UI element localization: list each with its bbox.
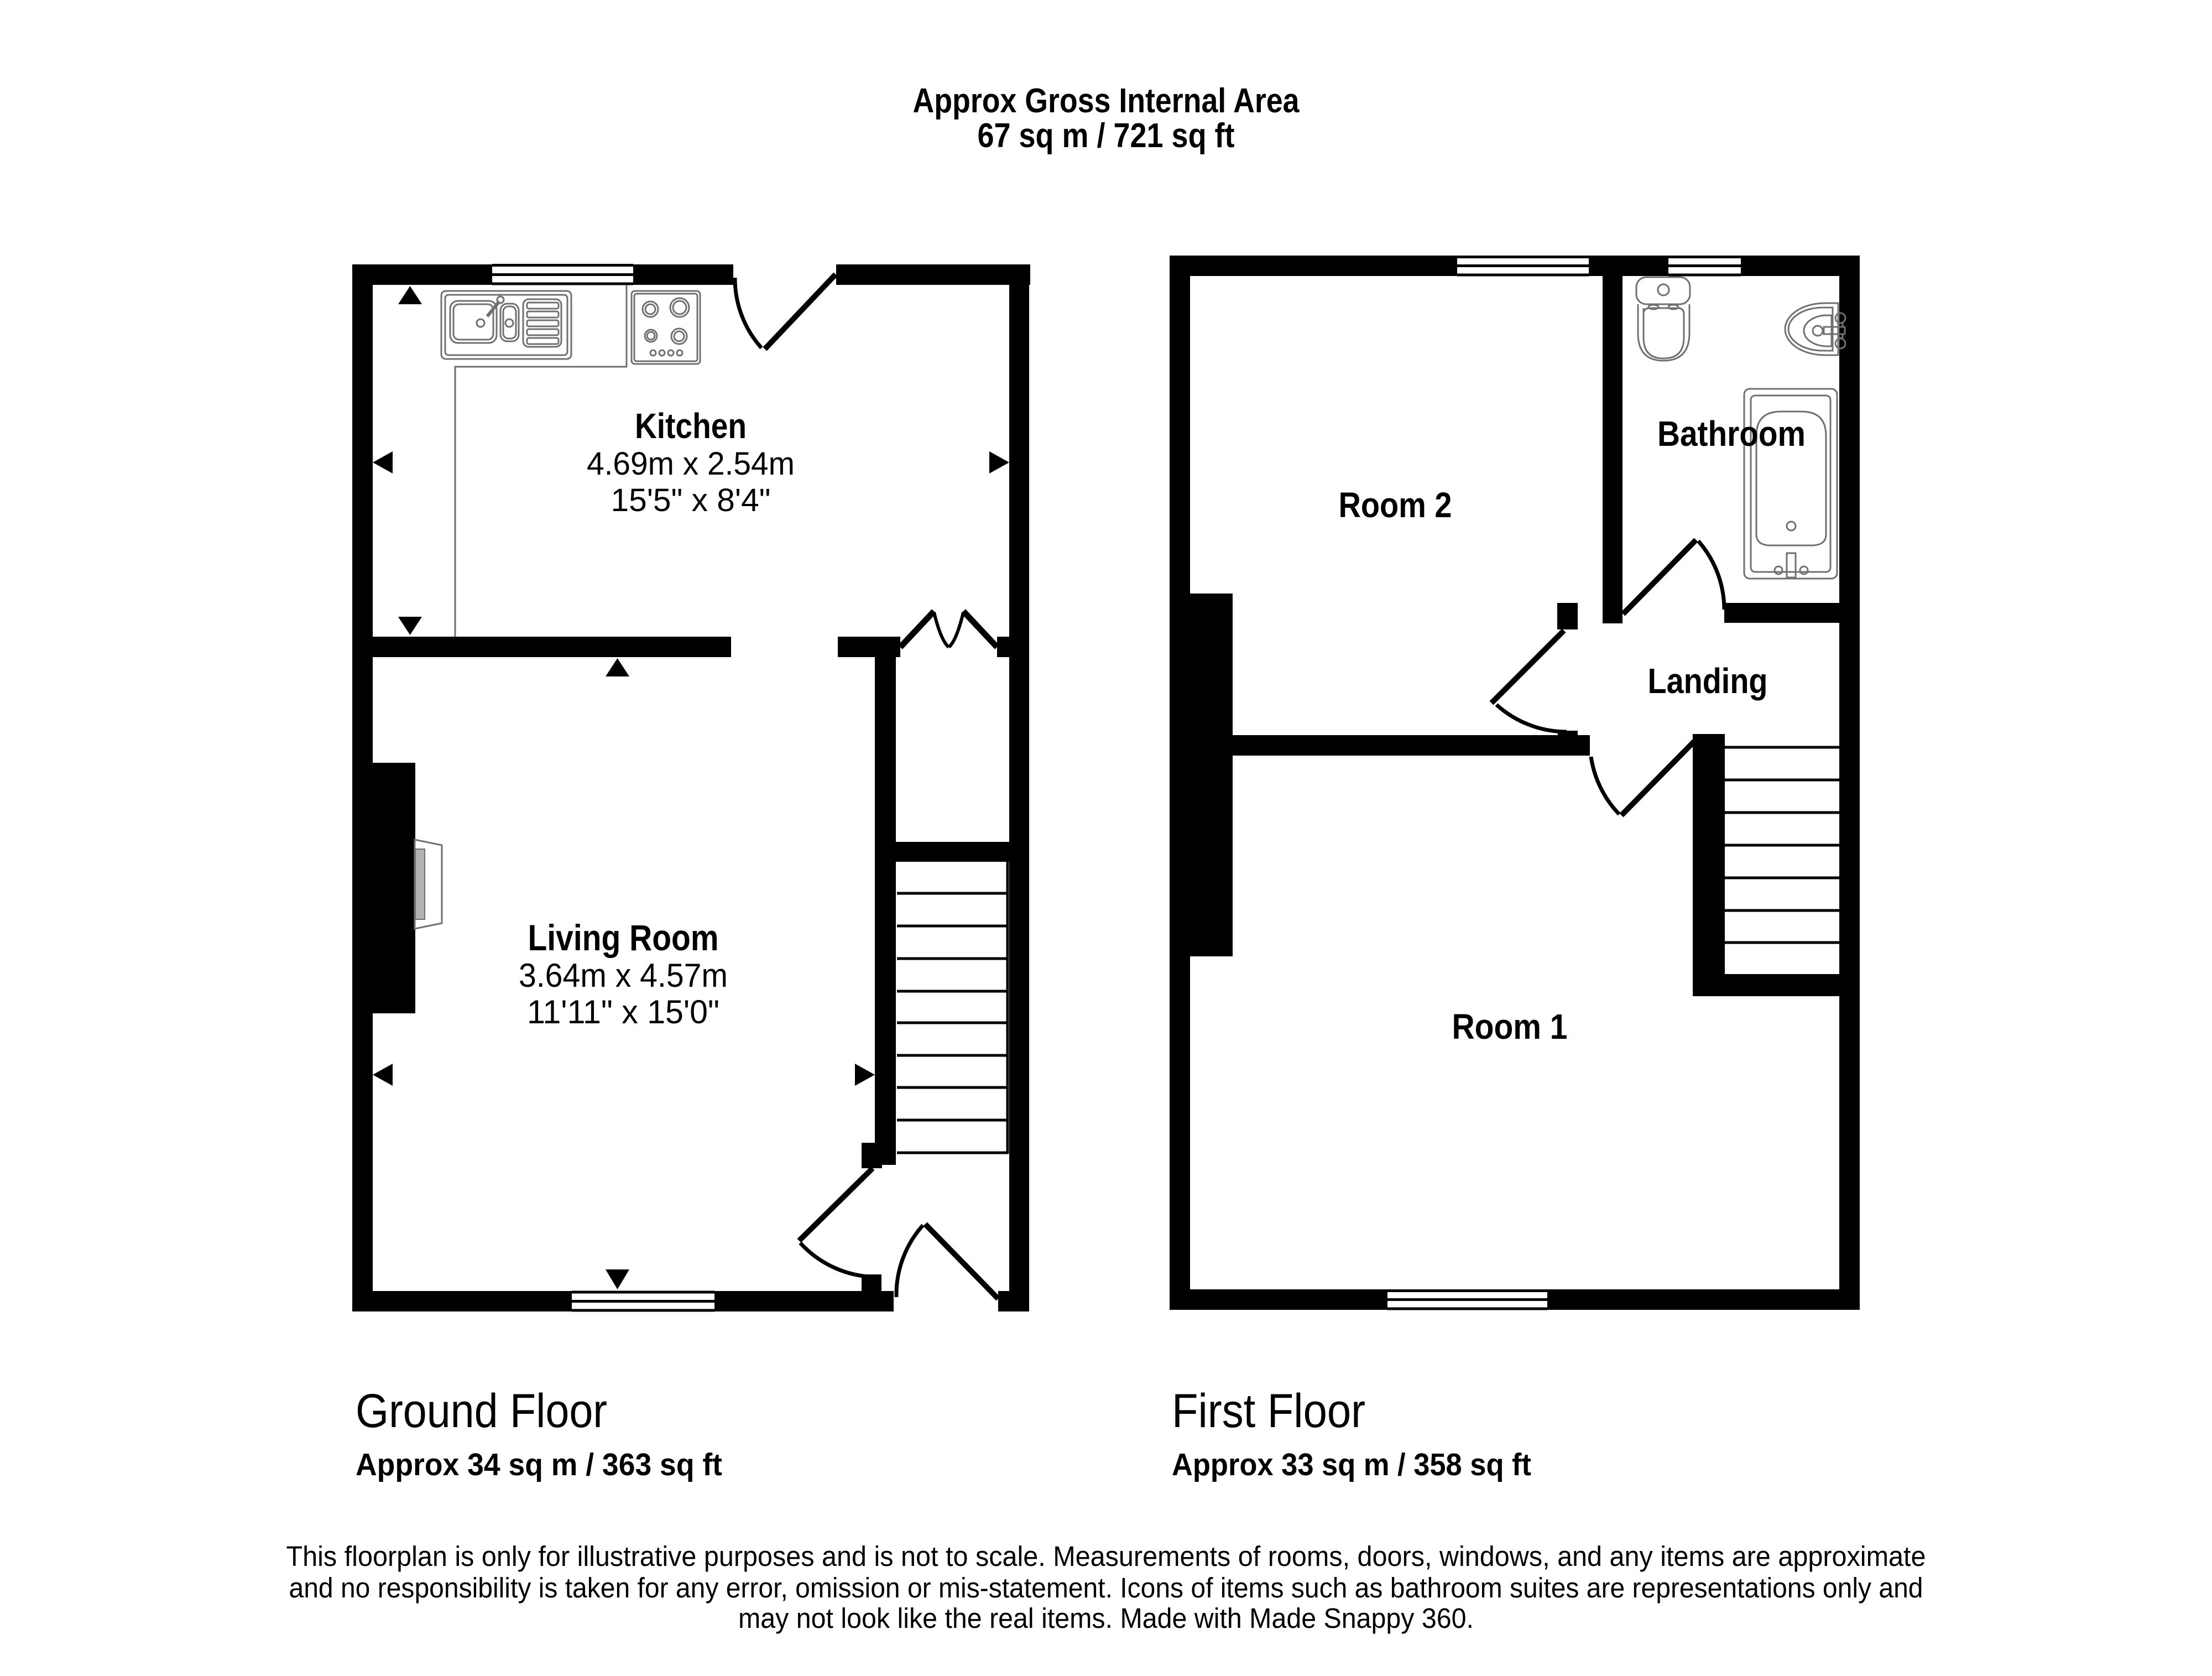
svg-text:67 sq m / 721 sq ft: 67 sq m / 721 sq ft bbox=[978, 117, 1235, 155]
svg-text:Landing: Landing bbox=[1648, 661, 1768, 701]
svg-text:Living Room: Living Room bbox=[528, 917, 719, 958]
svg-text:Ground Floor: Ground Floor bbox=[356, 1384, 607, 1438]
svg-text:Bathroom: Bathroom bbox=[1657, 414, 1806, 454]
svg-text:Room 2: Room 2 bbox=[1339, 485, 1452, 525]
svg-text:Approx Gross Internal Area: Approx Gross Internal Area bbox=[913, 82, 1300, 120]
svg-text:may not look like the real ite: may not look like the real items. Made w… bbox=[738, 1602, 1474, 1634]
svg-text:This floorplan is only for ill: This floorplan is only for illustrative … bbox=[286, 1540, 1926, 1572]
svg-text:15'5" x 8'4": 15'5" x 8'4" bbox=[611, 482, 771, 518]
svg-text:Approx 33 sq m / 358 sq ft: Approx 33 sq m / 358 sq ft bbox=[1172, 1447, 1531, 1482]
svg-text:Approx 34 sq m / 363 sq ft: Approx 34 sq m / 363 sq ft bbox=[356, 1447, 722, 1482]
svg-text:4.69m x 2.54m: 4.69m x 2.54m bbox=[587, 446, 795, 482]
svg-text:Room 1: Room 1 bbox=[1452, 1007, 1568, 1047]
svg-text:3.64m x 4.57m: 3.64m x 4.57m bbox=[519, 957, 728, 994]
svg-text:First Floor: First Floor bbox=[1172, 1384, 1365, 1438]
svg-text:11'11" x 15'0": 11'11" x 15'0" bbox=[527, 993, 719, 1030]
svg-text:Kitchen: Kitchen bbox=[635, 406, 747, 446]
svg-text:and no responsibility is taken: and no responsibility is taken for any e… bbox=[289, 1572, 1923, 1604]
